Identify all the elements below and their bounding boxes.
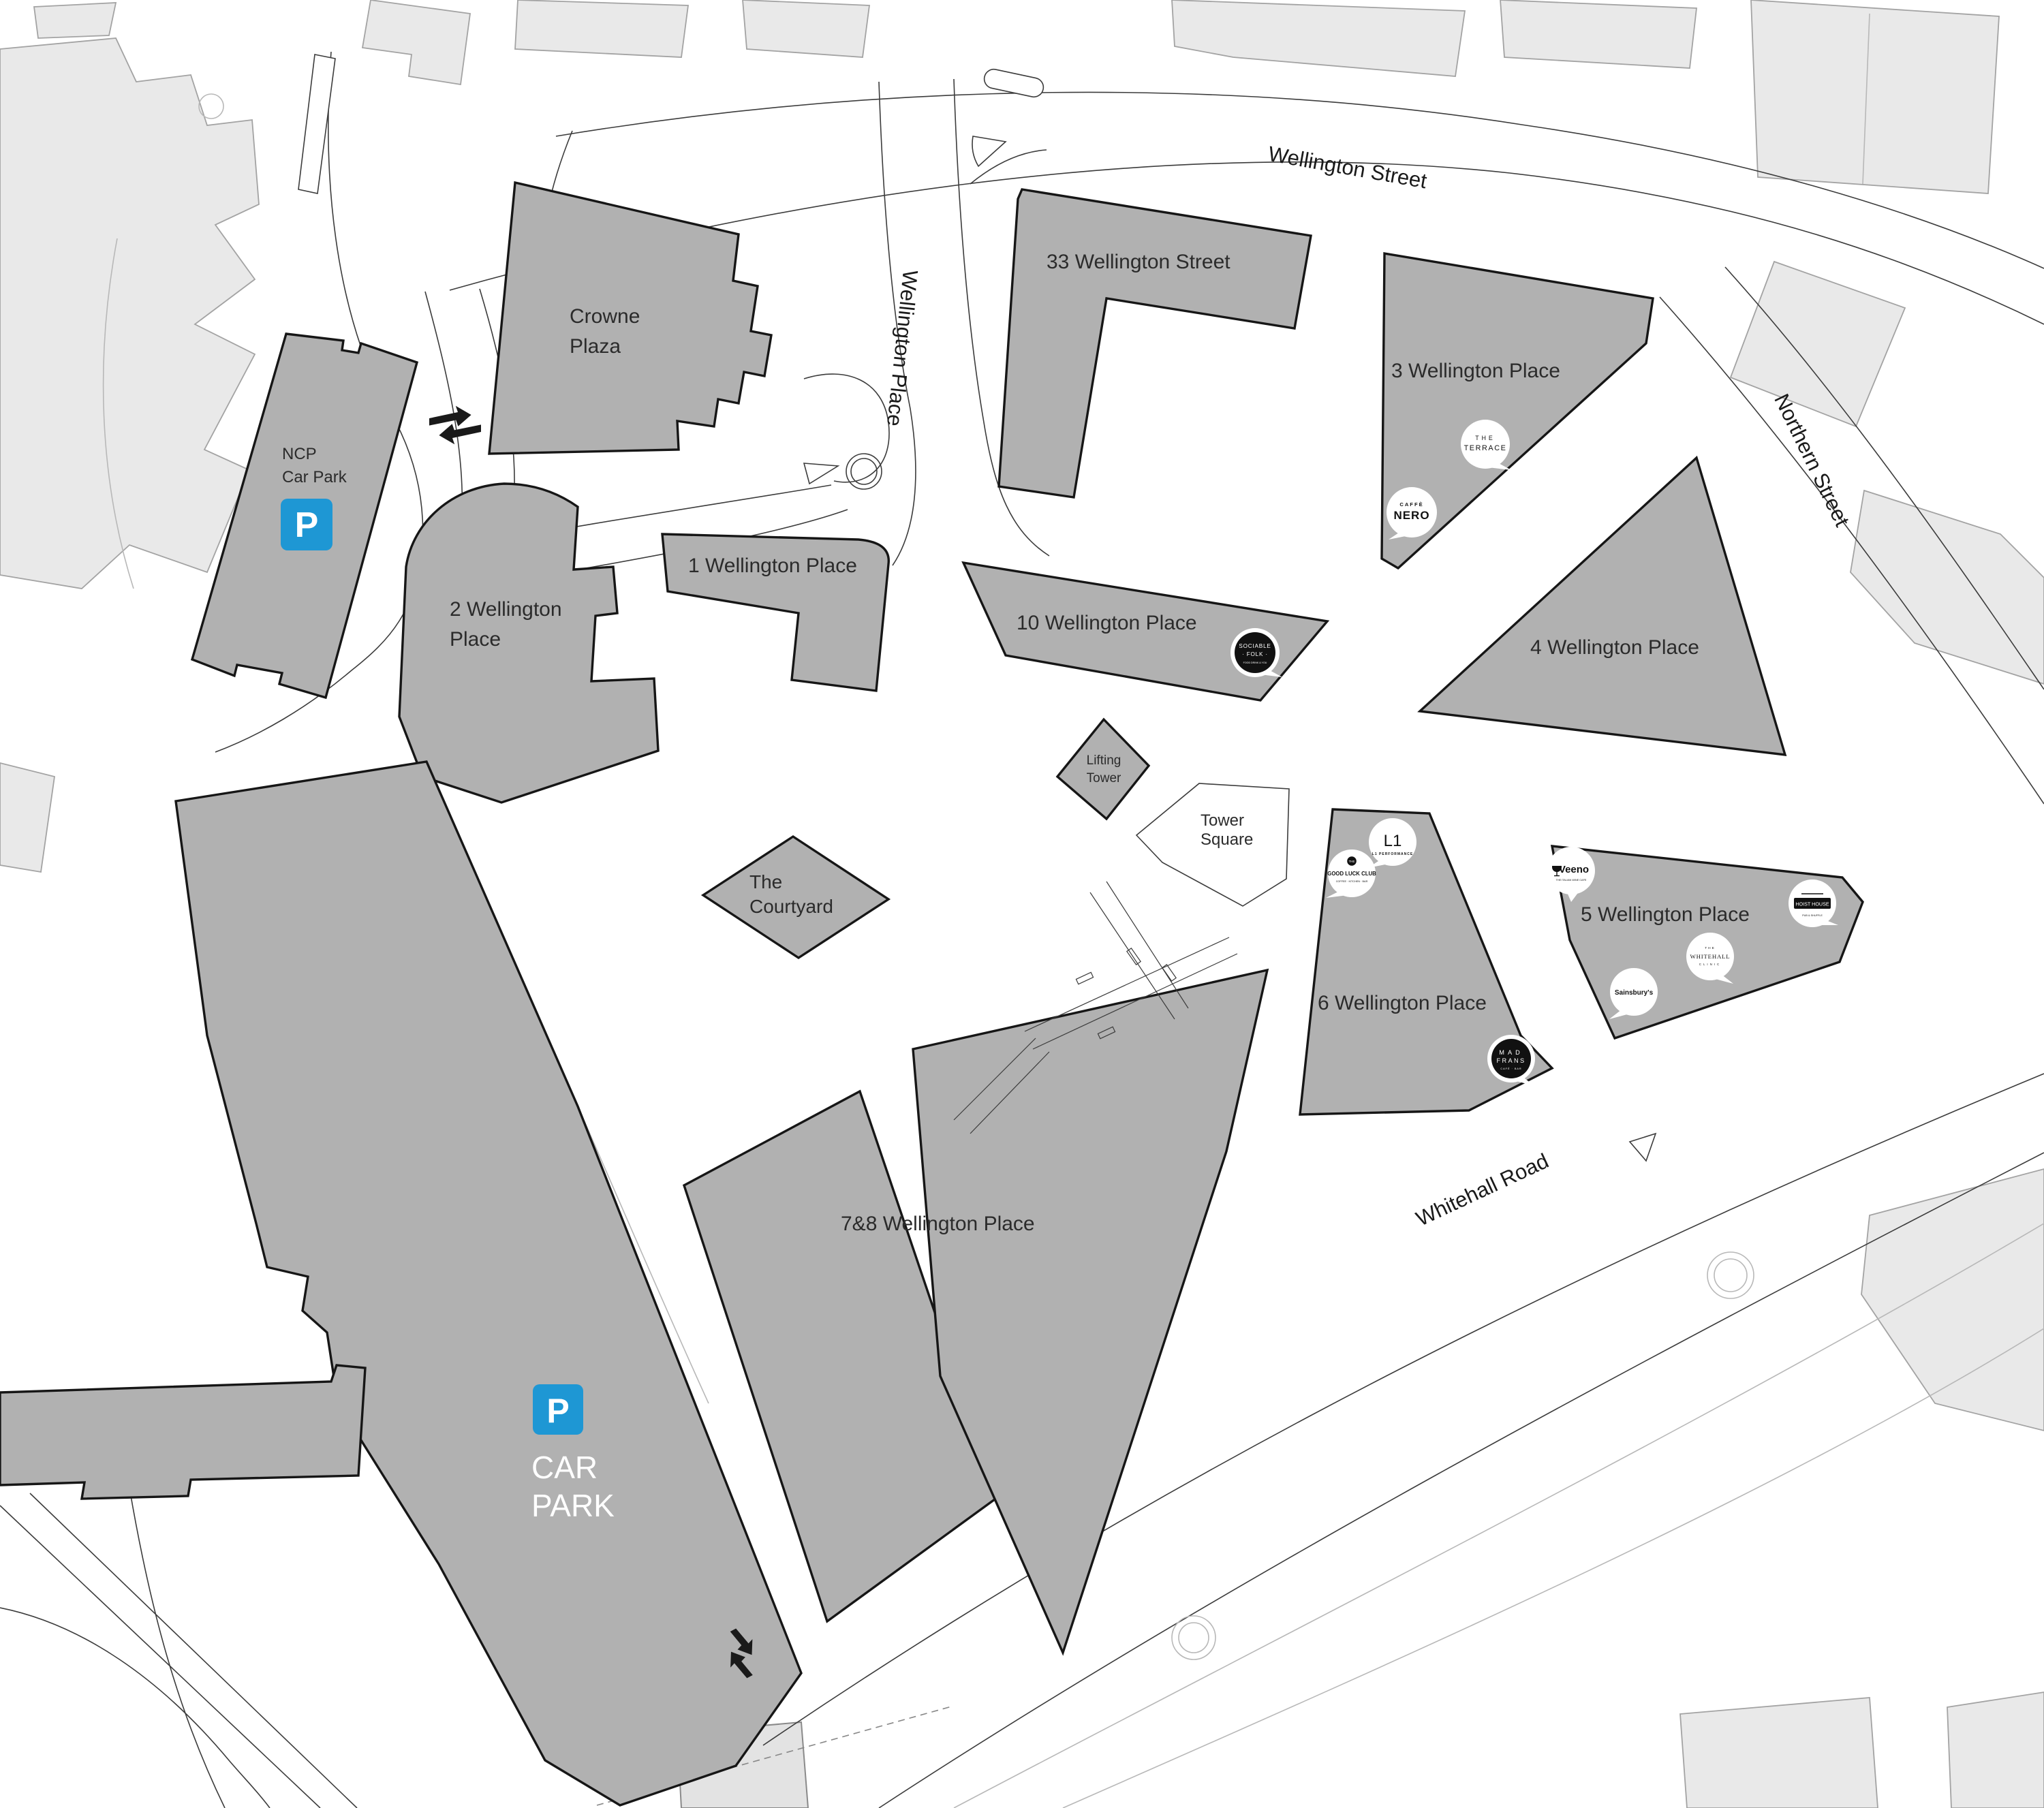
svg-text:THE: THE [1705, 946, 1716, 950]
svg-text:L1 PERFORMANCE: L1 PERFORMANCE [1372, 852, 1413, 856]
label-crowne-plaza: Crowne [570, 305, 640, 328]
label-7-8-wellington-place: 7&8 Wellington Place [841, 1213, 1035, 1235]
label-33-wellington-street: 33 Wellington Street [1047, 251, 1230, 273]
svg-text:NERO: NERO [1393, 509, 1429, 522]
context-block [1172, 0, 1465, 76]
svg-text:CAFFÈ: CAFFÈ [1399, 501, 1423, 508]
svg-text:Sainsbury's: Sainsbury's [1615, 989, 1654, 997]
building-context-south-west [0, 1365, 365, 1499]
svg-text:THE: THE [1349, 860, 1355, 863]
building-car-park [176, 762, 801, 1805]
context-block [34, 3, 116, 38]
label-crowne-plaza: Plaza [570, 335, 621, 358]
label-5-wellington-place: 5 Wellington Place [1581, 903, 1750, 926]
label-ncp: NCP [282, 445, 317, 463]
svg-text:COFFEE · KITCHEN · BAR: COFFEE · KITCHEN · BAR [1336, 880, 1368, 883]
context-block [1851, 490, 2044, 684]
label-1-wellington-place: 1 Wellington Place [688, 555, 857, 577]
label-4-wellington-place: 4 Wellington Place [1530, 636, 1699, 659]
svg-text:CLINIC: CLINIC [1699, 963, 1721, 966]
label-tower-square: Square [1201, 830, 1253, 849]
context-block [0, 763, 55, 872]
context-block [1861, 1169, 2044, 1431]
context-block [1947, 1692, 2044, 1808]
arrow-icon [439, 424, 481, 444]
building-4-wellington-place [1420, 458, 1785, 755]
traffic-island [972, 136, 1006, 166]
traffic-island [1630, 1134, 1656, 1161]
building-7-8-wellington-place-east [913, 970, 1267, 1653]
label-car-park: PARK [531, 1488, 615, 1523]
context-block [515, 0, 688, 57]
traffic-island [804, 463, 838, 484]
context-block [362, 0, 470, 84]
parking-icon-letter: P [295, 505, 319, 545]
street-label-wellington-street: Wellington Street [1267, 142, 1429, 193]
svg-text:· FOLK ·: · FOLK · [1242, 651, 1268, 657]
label-2-wellington-place: Place [450, 628, 501, 651]
context-block [1731, 262, 1905, 426]
label-2-wellington-place: 2 Wellington [450, 598, 562, 621]
arrow-icon [429, 406, 471, 426]
label-ncp: Car Park [282, 468, 347, 486]
street-label-wellington-place: Wellington Place [882, 269, 923, 428]
svg-text:PUB & SHUFFLE: PUB & SHUFFLE [1802, 914, 1823, 917]
svg-text:HOIST HOUSE: HOIST HOUSE [1795, 901, 1829, 907]
svg-text:CAFÉ · BAR: CAFÉ · BAR [1500, 1067, 1521, 1070]
svg-text:THE ITALIAN WINE CAFE: THE ITALIAN WINE CAFE [1556, 879, 1587, 882]
label-the-courtyard: Courtyard [749, 896, 833, 917]
label-3-wellington-place: 3 Wellington Place [1391, 360, 1560, 382]
building-33-wellington-street [999, 189, 1311, 497]
svg-text:Veeno: Veeno [1559, 864, 1589, 875]
building-lifting-tower [1057, 719, 1149, 819]
svg-text:SOCIABLE: SOCIABLE [1239, 643, 1271, 649]
svg-text:MAD: MAD [1499, 1049, 1523, 1056]
parking-icon-letter: P [546, 1392, 569, 1430]
svg-text:L1: L1 [1384, 832, 1402, 850]
svg-text:GOOD LUCK CLUB: GOOD LUCK CLUB [1327, 871, 1376, 877]
context-block [1680, 1698, 1878, 1808]
svg-text:TERRACE: TERRACE [1464, 444, 1507, 452]
label-10-wellington-place: 10 Wellington Place [1017, 612, 1197, 634]
label-lifting-tower: Tower [1087, 771, 1121, 785]
street-label-whitehall-road: Whitehall Road [1412, 1149, 1552, 1231]
map-canvas: Crowne Plaza NCP Car Park 2 Wellington P… [0, 0, 2044, 1808]
svg-text:WHITEHALL: WHITEHALL [1690, 953, 1731, 960]
building-2-wellington-place [399, 484, 658, 802]
label-lifting-tower: Lifting [1087, 753, 1121, 768]
site-map: Crowne Plaza NCP Car Park 2 Wellington P… [0, 0, 2044, 1808]
svg-text:THE: THE [1475, 435, 1496, 441]
buildings [0, 183, 1863, 1805]
label-tower-square: Tower [1201, 811, 1244, 830]
context-block [1500, 0, 1697, 68]
svg-text:FOOD DRINK & YOU: FOOD DRINK & YOU [1243, 661, 1267, 664]
label-6-wellington-place: 6 Wellington Place [1318, 992, 1487, 1014]
context-block [0, 38, 259, 589]
context-block [1751, 0, 1999, 193]
context-block [743, 0, 869, 57]
svg-text:FRANS: FRANS [1496, 1057, 1526, 1064]
label-the-courtyard: The [749, 871, 782, 892]
label-car-park: CAR [531, 1450, 598, 1485]
